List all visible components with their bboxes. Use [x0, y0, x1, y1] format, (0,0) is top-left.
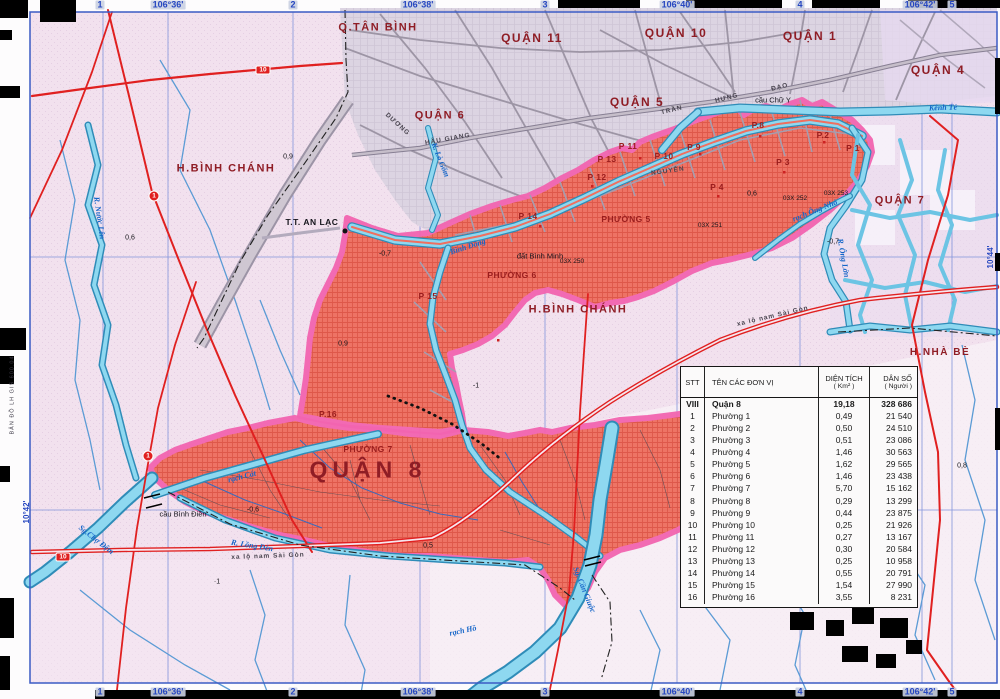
cell-name: Phường 8: [705, 495, 819, 507]
cell-pop: 20 791: [870, 567, 918, 579]
table-row: 5Phường 51,6229 565: [681, 458, 917, 470]
cell-pop: 21 926: [870, 519, 918, 531]
cell-area: 3,55: [819, 592, 870, 604]
cell-stt: 7: [681, 483, 705, 495]
stats-table-body: VIIIQuận 819,18328 6861Phường 10,4921 54…: [681, 398, 917, 604]
cell-name: Phường 2: [705, 422, 819, 434]
cell-stt: 13: [681, 555, 705, 567]
table-row: 12Phường 120,3020 584: [681, 543, 917, 555]
cell-area: 0,29: [819, 495, 870, 507]
cell-pop: 23 438: [870, 471, 918, 483]
header-stt: STT: [681, 367, 705, 398]
table-row: 7Phường 75,7015 162: [681, 483, 917, 495]
cell-area: 0,25: [819, 519, 870, 531]
cell-pop: 10 958: [870, 555, 918, 567]
cell-pop: 21 540: [870, 410, 918, 422]
cell-pop: 15 162: [870, 483, 918, 495]
cell-stt: 2: [681, 422, 705, 434]
cell-stt: 8: [681, 495, 705, 507]
table-row: 8Phường 80,2913 299: [681, 495, 917, 507]
cell-stt: 10: [681, 519, 705, 531]
table-row: 4Phường 41,4630 563: [681, 446, 917, 458]
cell-area: 1,46: [819, 446, 870, 458]
road-number-badge: 10: [256, 66, 271, 75]
cell-stt: 4: [681, 446, 705, 458]
statistics-panel: STT TÊN CÁC ĐƠN VỊ DIỆN TÍCH ( Km² ) DÂN…: [680, 366, 918, 608]
table-row: 6Phường 61,4623 438: [681, 471, 917, 483]
cell-pop: 20 584: [870, 543, 918, 555]
cell-stt: 1: [681, 410, 705, 422]
cell-area: 19,18: [819, 398, 870, 411]
header-name: TÊN CÁC ĐƠN VỊ: [705, 367, 819, 398]
road-number-badge: 1: [149, 191, 160, 202]
cell-pop: 328 686: [870, 398, 918, 411]
table-row: VIIIQuận 819,18328 686: [681, 398, 917, 411]
cell-area: 5,70: [819, 483, 870, 495]
table-row: 15Phường 151,5427 990: [681, 579, 917, 591]
table-row: 9Phường 90,4423 875: [681, 507, 917, 519]
road-number-badge: 10: [56, 553, 71, 562]
cell-stt: 14: [681, 567, 705, 579]
cell-area: 0,25: [819, 555, 870, 567]
cell-name: Phường 5: [705, 458, 819, 470]
cell-pop: 27 990: [870, 579, 918, 591]
header-pop-line2: ( Người ): [870, 383, 912, 390]
map-page: Q.TÂN BÌNHQUẬN 11QUẬN 10QUẬN 1QUẬN 4QUẬN…: [0, 0, 1000, 699]
cell-stt: VIII: [681, 398, 705, 411]
table-row: 14Phường 140,5520 791: [681, 567, 917, 579]
header-area-line1: DIỆN TÍCH: [819, 374, 869, 383]
table-row: 13Phường 130,2510 958: [681, 555, 917, 567]
table-row: 2Phường 20,5024 510: [681, 422, 917, 434]
cell-name: Phường 11: [705, 531, 819, 543]
cell-area: 0,30: [819, 543, 870, 555]
table-row: 1Phường 10,4921 540: [681, 410, 917, 422]
table-row: 16Phường 163,558 231: [681, 592, 917, 604]
town-symbol: [343, 229, 348, 234]
cell-stt: 6: [681, 471, 705, 483]
cell-area: 0,49: [819, 410, 870, 422]
cell-name: Phường 6: [705, 471, 819, 483]
cell-name: Phường 10: [705, 519, 819, 531]
cell-pop: 30 563: [870, 446, 918, 458]
cell-name: Phường 1: [705, 410, 819, 422]
cell-name: Phường 4: [705, 446, 819, 458]
cell-pop: 13 299: [870, 495, 918, 507]
cell-area: 1,62: [819, 458, 870, 470]
cell-area: 1,54: [819, 579, 870, 591]
cell-area: 1,46: [819, 471, 870, 483]
cell-stt: 3: [681, 434, 705, 446]
table-row: 3Phường 30,5123 086: [681, 434, 917, 446]
cell-pop: 23 875: [870, 507, 918, 519]
cell-name: Phường 7: [705, 483, 819, 495]
cell-name: Phường 14: [705, 567, 819, 579]
cell-name: Phường 12: [705, 543, 819, 555]
cell-stt: 16: [681, 592, 705, 604]
cell-stt: 5: [681, 458, 705, 470]
cell-name: Phường 16: [705, 592, 819, 604]
header-pop-line1: DÂN SỐ: [870, 374, 912, 383]
cell-name: Phường 3: [705, 434, 819, 446]
cell-area: 0,55: [819, 567, 870, 579]
cell-area: 0,27: [819, 531, 870, 543]
cell-name: Quận 8: [705, 398, 819, 411]
cell-pop: 24 510: [870, 422, 918, 434]
cell-area: 0,50: [819, 422, 870, 434]
table-row: 10Phường 100,2521 926: [681, 519, 917, 531]
cell-area: 0,51: [819, 434, 870, 446]
road-number-badge: 1: [143, 451, 154, 462]
cell-name: Phường 9: [705, 507, 819, 519]
cell-name: Phường 13: [705, 555, 819, 567]
header-pop: DÂN SỐ ( Người ): [870, 367, 918, 398]
cell-stt: 11: [681, 531, 705, 543]
table-row: 11Phường 110,2713 167: [681, 531, 917, 543]
cell-name: Phường 15: [705, 579, 819, 591]
cell-stt: 15: [681, 579, 705, 591]
cell-pop: 23 086: [870, 434, 918, 446]
cell-stt: 12: [681, 543, 705, 555]
header-area-line2: ( Km² ): [819, 383, 869, 390]
cell-stt: 9: [681, 507, 705, 519]
header-area: DIỆN TÍCH ( Km² ): [819, 367, 870, 398]
cell-pop: 29 565: [870, 458, 918, 470]
cell-pop: 13 167: [870, 531, 918, 543]
stats-table-header-row: STT TÊN CÁC ĐƠN VỊ DIỆN TÍCH ( Km² ) DÂN…: [681, 367, 917, 398]
cell-area: 0,44: [819, 507, 870, 519]
stats-table: STT TÊN CÁC ĐƠN VỊ DIỆN TÍCH ( Km² ) DÂN…: [681, 367, 917, 604]
cell-pop: 8 231: [870, 592, 918, 604]
